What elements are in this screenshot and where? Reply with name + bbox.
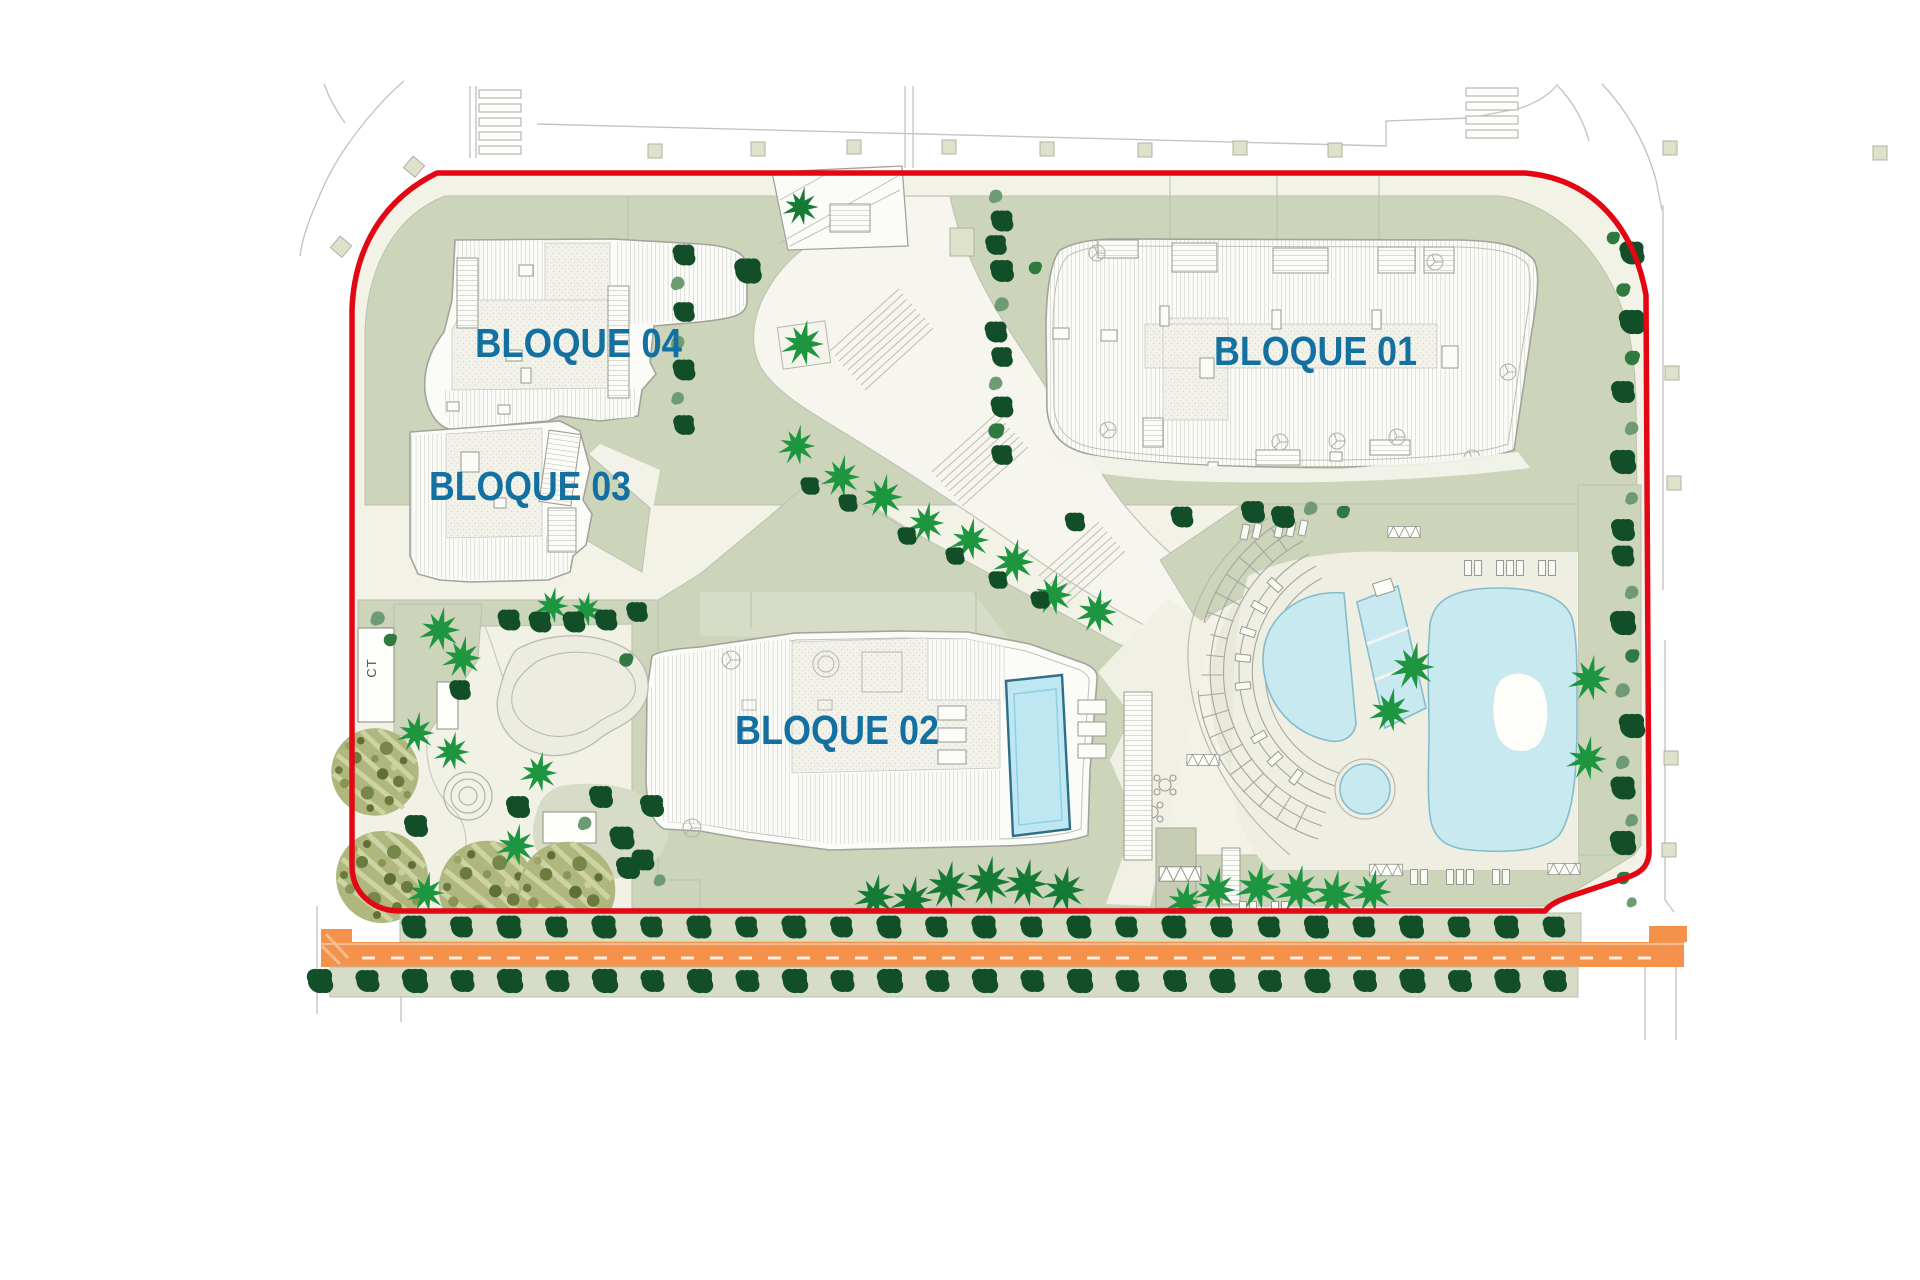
svg-text:CT: CT — [364, 658, 379, 677]
svg-text:BLOQUE 03: BLOQUE 03 — [429, 463, 631, 509]
svg-text:BLOQUE 02: BLOQUE 02 — [735, 707, 939, 753]
svg-text:BLOQUE 01: BLOQUE 01 — [1214, 328, 1417, 374]
svg-text:BLOQUE 04: BLOQUE 04 — [475, 320, 682, 366]
